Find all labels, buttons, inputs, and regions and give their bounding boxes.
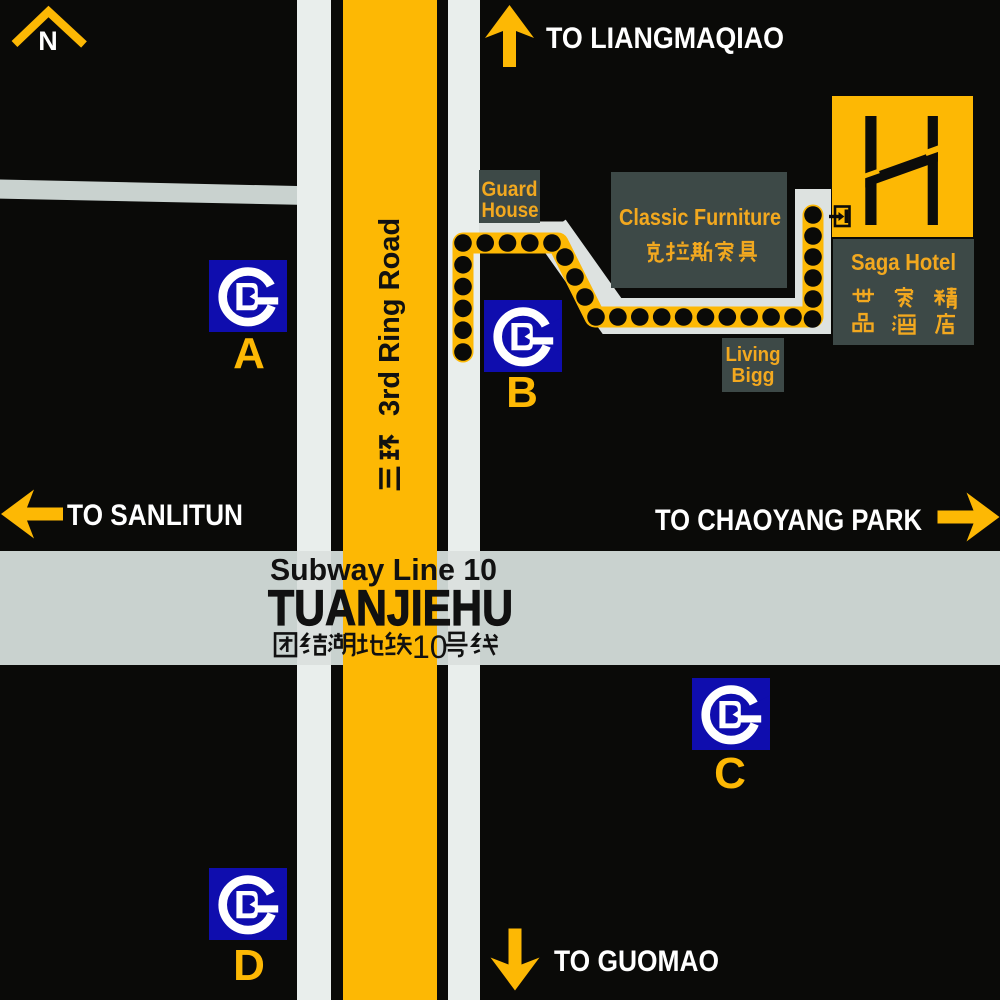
svg-text:B: B (506, 368, 538, 417)
svg-text:Classic Furniture: Classic Furniture (619, 204, 781, 230)
svg-text:D: D (233, 941, 265, 990)
svg-text:A: A (233, 329, 265, 378)
svg-text:TUANJIEHU: TUANJIEHU (268, 580, 513, 636)
svg-text:TO SANLITUN: TO SANLITUN (67, 499, 243, 532)
svg-text:TO GUOMAO: TO GUOMAO (554, 945, 719, 978)
svg-text:3rd Ring Road: 3rd Ring Road (374, 218, 406, 416)
svg-text:TO CHAOYANG PARK: TO CHAOYANG PARK (655, 504, 922, 537)
svg-text:Guard: Guard (482, 178, 538, 201)
svg-text:Bigg: Bigg (732, 365, 775, 387)
svg-text:House: House (482, 199, 539, 222)
svg-text:Living: Living (726, 344, 781, 366)
svg-text:Saga Hotel: Saga Hotel (851, 249, 956, 275)
svg-text:N: N (38, 26, 58, 56)
svg-text:TO LIANGMAQIAO: TO LIANGMAQIAO (546, 22, 784, 55)
svg-text:C: C (714, 749, 746, 798)
svg-text:10: 10 (412, 629, 448, 665)
